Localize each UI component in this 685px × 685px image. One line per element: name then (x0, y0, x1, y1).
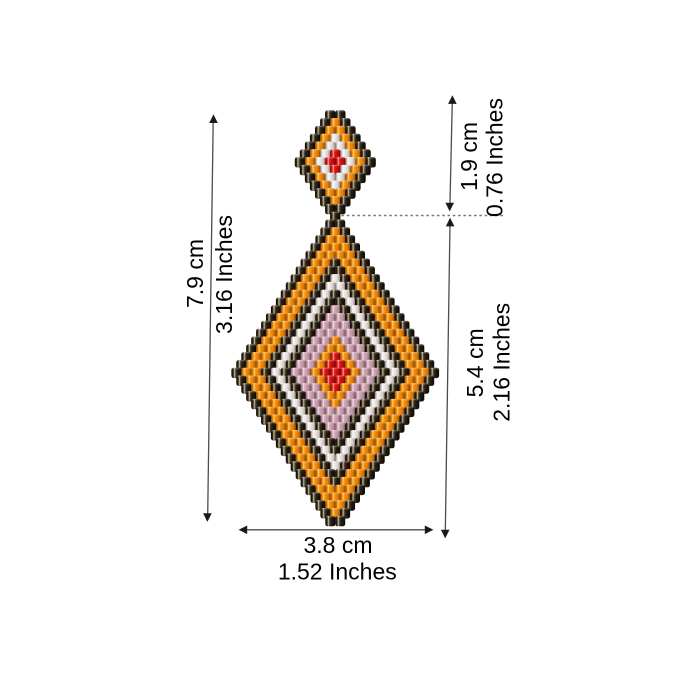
svg-text:5.4 cm: 5.4 cm (462, 328, 488, 397)
svg-text:7.9 cm: 7.9 cm (182, 239, 208, 308)
svg-text:1.9 cm: 1.9 cm (456, 122, 482, 191)
svg-text:3.8 cm: 3.8 cm (303, 532, 372, 558)
svg-text:0.76 Inches: 0.76 Inches (481, 98, 507, 217)
svg-text:1.52 Inches: 1.52 Inches (278, 559, 397, 585)
svg-text:3.16 Inches: 3.16 Inches (211, 215, 237, 334)
svg-text:2.16 Inches: 2.16 Inches (488, 303, 514, 422)
